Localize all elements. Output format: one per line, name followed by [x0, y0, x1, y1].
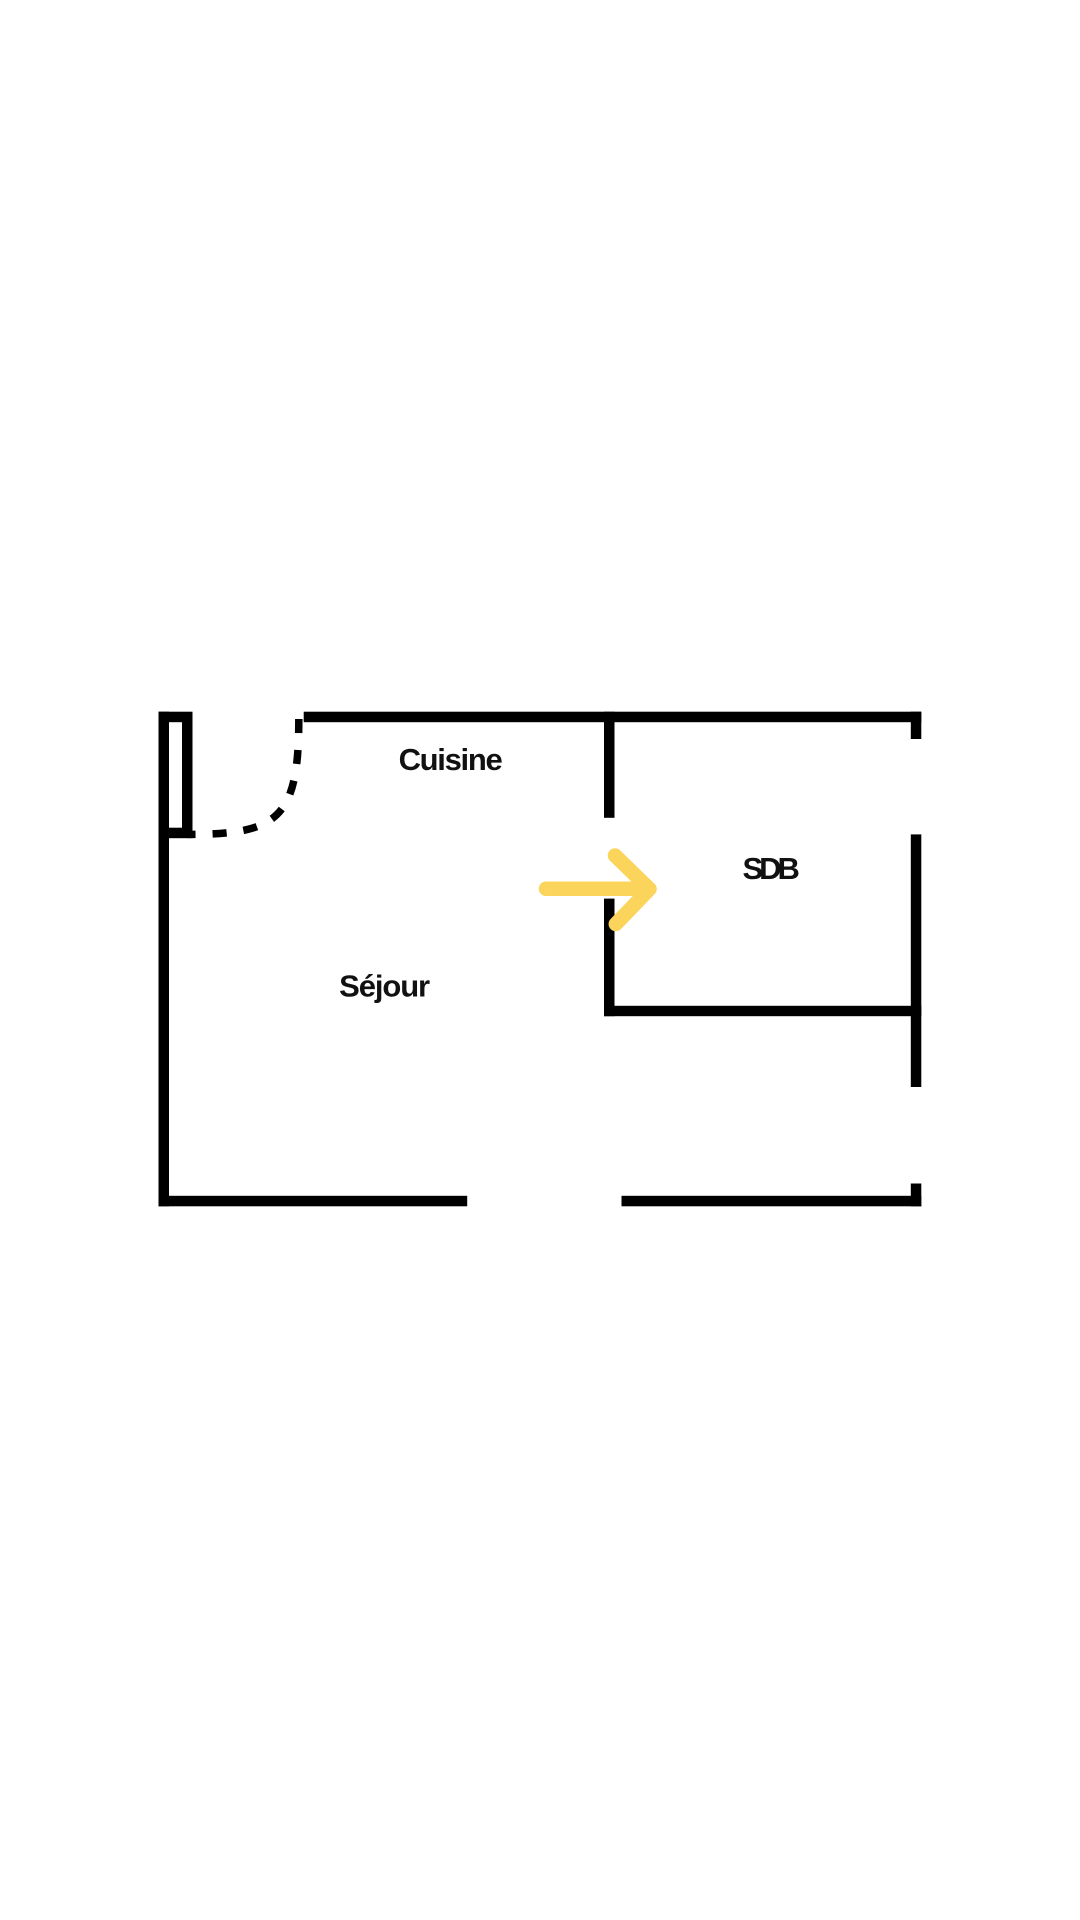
svg-text:SDB: SDB	[742, 851, 798, 886]
svg-text:Séjour: Séjour	[339, 969, 430, 1004]
svg-text:Cuisine: Cuisine	[399, 742, 503, 777]
